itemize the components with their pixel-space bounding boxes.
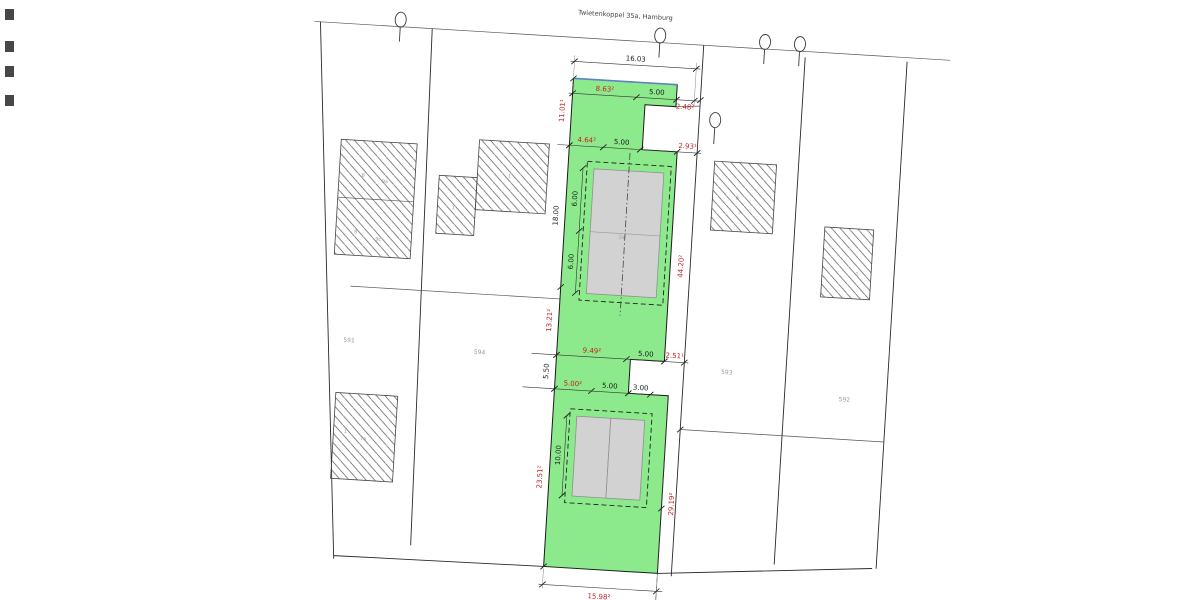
dim-row1-a: 8.63² <box>595 85 614 94</box>
dim-row3-b: 5.00 <box>638 350 654 359</box>
neighbour-building-E <box>821 227 874 300</box>
building-label: 1 <box>344 429 348 435</box>
dim-right-2: 29.19² <box>667 492 676 515</box>
site-plan-page: Twietenkoppel 35a, Hamburg <box>0 0 1200 600</box>
building-label: 6 <box>736 195 740 201</box>
dim-left-5: 23.51² <box>535 465 544 488</box>
dim-left-4: 5.50 <box>542 363 551 379</box>
house-number-label: 2a <box>619 234 626 240</box>
dim-row2-b: 5.00 <box>614 138 630 147</box>
building-label: 9c <box>375 237 382 243</box>
building-label: 8 <box>354 229 358 235</box>
building-label: 9a <box>381 179 388 185</box>
dim-bottom-total: 15.98² <box>587 592 610 600</box>
building-unit-left <box>572 416 611 498</box>
dim-row4-a: 5.00² <box>563 379 582 388</box>
building-label: 3 <box>738 210 742 216</box>
dim-top-total: 16.03 <box>626 55 646 64</box>
neighbour-building-C <box>475 140 549 214</box>
dim-left-3: 13.21² <box>545 309 554 332</box>
dim-building-top-1: 6.00 <box>571 191 580 207</box>
dim-building-top-2: 6.00 <box>567 254 576 270</box>
site-plan-drawing: Twietenkoppel 35a, Hamburg <box>0 0 1200 600</box>
parcel-id-593: 593 <box>721 369 733 377</box>
building-label: 2 <box>855 272 859 278</box>
dim-row1-c: 2.48² <box>675 103 694 112</box>
building-label: 7a <box>360 436 367 442</box>
dim-row2-a: 4.64² <box>577 136 596 145</box>
dim-right-1: 44.20² <box>677 254 686 277</box>
building-unit-right <box>606 418 645 500</box>
dim-building-bottom-1: 10.00 <box>554 445 563 465</box>
dim-row2-c: 2.93¹ <box>678 142 697 151</box>
building-footprint <box>586 169 664 298</box>
building-label: 1 <box>452 205 456 211</box>
building-label: 8 <box>361 173 365 179</box>
dim-row4-b: 5.00 <box>602 382 618 391</box>
neighbour-building-D <box>710 161 776 234</box>
dim-row3-a: 9.49² <box>582 346 601 355</box>
neighbour-building-B <box>436 175 477 235</box>
building-label: 1 <box>508 174 512 180</box>
dim-row4-c: 3.00 <box>633 384 649 393</box>
dim-left-2: 18.00 <box>551 205 560 225</box>
parcel-id-592: 592 <box>838 396 850 404</box>
parcel-id-594: 594 <box>474 349 486 357</box>
planned-building-bottom <box>565 409 653 508</box>
dim-left-1: 11.01¹ <box>558 99 567 122</box>
parcel-id-591: 591 <box>343 337 355 345</box>
dim-row1-b: 5.00 <box>649 88 665 97</box>
dim-row3-c: 2.51¹ <box>665 351 684 360</box>
